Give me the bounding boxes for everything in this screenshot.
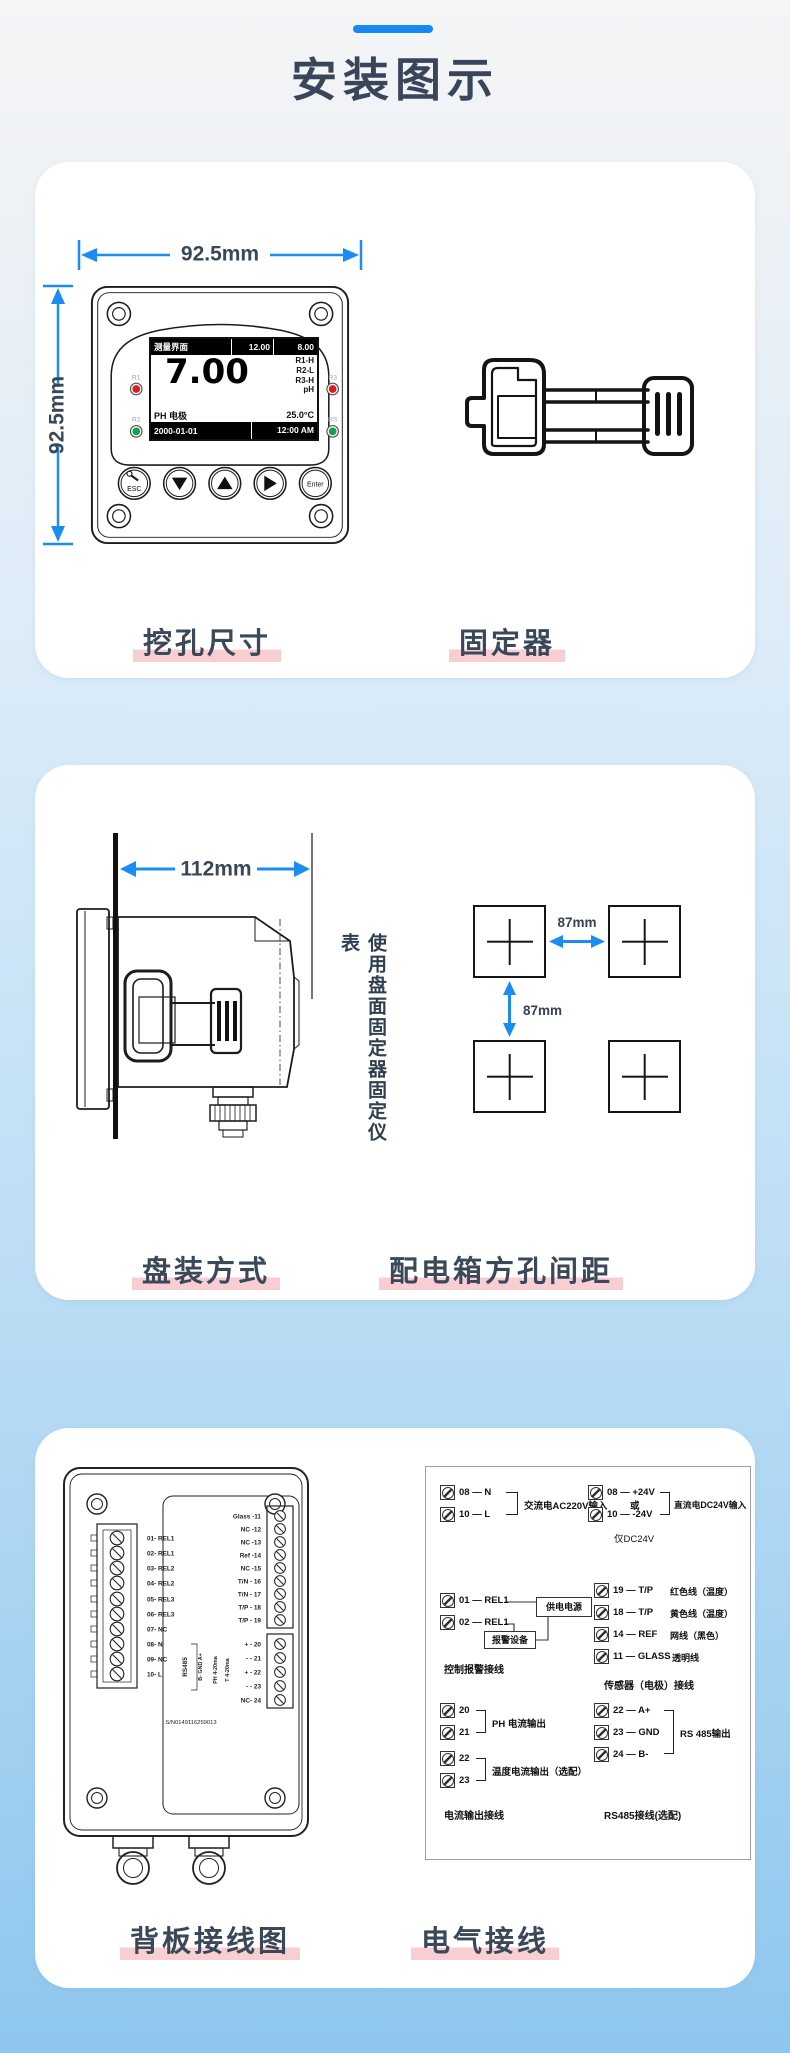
group-bracket xyxy=(660,1492,670,1515)
ph-main-value: 7.00 xyxy=(165,352,249,392)
terminal-screw xyxy=(440,1615,455,1630)
led-label-r2: R2 xyxy=(132,417,141,424)
pin-label: 01 — REL1 xyxy=(459,1595,509,1606)
pin-label: 20 xyxy=(459,1705,470,1716)
caption-cutout-size: 挖孔尺寸 xyxy=(133,620,281,662)
terminal-label: 08- N xyxy=(147,1642,163,1649)
probe-label: PH 电极 xyxy=(154,409,187,422)
dc-only-note: 仅DC24V xyxy=(614,1531,654,1545)
terminal-screw xyxy=(594,1627,609,1642)
wrench-icon xyxy=(127,471,138,480)
terminal-screw xyxy=(440,1485,455,1500)
terminal-label: 10- L xyxy=(147,1672,162,1679)
pin-label: 24 — B- xyxy=(613,1749,648,1760)
pin-label: 18 — T/P xyxy=(613,1607,653,1618)
led-r3 xyxy=(329,385,337,393)
group-bracket xyxy=(506,1492,518,1515)
pin-label: 11 — GLASS xyxy=(613,1651,671,1662)
terminal-screw xyxy=(588,1485,603,1500)
rs485-rotated-label: RS485 xyxy=(182,1657,189,1677)
pin-label: 02 — REL1 xyxy=(459,1617,509,1628)
relay-status-column: R1-H R2-L R3-H pH xyxy=(295,356,314,395)
terminal-label: 06- REL3 xyxy=(147,1612,175,1619)
terminal-label: 09- NC xyxy=(147,1657,168,1664)
terminal-label: Ref -14 xyxy=(240,1553,262,1560)
pin-label: 22 xyxy=(459,1753,470,1764)
terminal-label: 05- REL3 xyxy=(147,1597,175,1604)
up-arrow-icon xyxy=(217,477,232,490)
led-label-r1: R1 xyxy=(132,374,141,381)
hole-spacing-arrows: 87mm 87mm xyxy=(473,905,723,1115)
down-arrow-icon xyxy=(172,478,187,491)
screen-probe-row: PH 电极 25.0°C xyxy=(151,408,317,422)
terminal-label: 01- REL1 xyxy=(147,1536,175,1543)
pin-label: 22 — A+ xyxy=(613,1705,650,1716)
sensor-caption: 传感器（电极）接线 xyxy=(604,1677,694,1692)
dim-height-label: 92.5mm xyxy=(46,376,69,454)
device-lcd-screen: 测量界面 12.00 8.00 7.00 R1-H R2-L R3-H pH P… xyxy=(149,337,319,441)
ph-output-rotated-label: PH 4-20ma xyxy=(213,1655,219,1684)
terminal-screw xyxy=(440,1703,455,1718)
group-bracket xyxy=(476,1710,486,1733)
terminal-label: NC -13 xyxy=(241,1540,262,1547)
pin-label: 23 xyxy=(459,1775,470,1786)
caption-panel-mounting: 盘装方式 xyxy=(132,1248,280,1290)
terminal-screw xyxy=(440,1593,455,1608)
pin-label: 19 — T/P xyxy=(613,1585,653,1596)
terminal-label: T/P - 19 xyxy=(238,1618,261,1625)
screen-footer: 2000-01-01 12:00 AM xyxy=(151,422,317,439)
device-buttons: ESC Enter xyxy=(118,467,331,499)
square-holes-diagram: 87mm 87mm xyxy=(473,905,723,1115)
gap-vertical-label: 87mm xyxy=(523,1003,562,1018)
relay-3-status: R3-H xyxy=(295,376,314,386)
panel-side-view-drawing: 112mm xyxy=(63,831,343,1143)
enter-button-label: Enter xyxy=(307,481,324,488)
relay-caption: 控制报警接线 xyxy=(444,1661,504,1676)
cable-glands xyxy=(113,1836,229,1884)
temp-current-label: 温度电流输出（选配） xyxy=(492,1764,587,1778)
rs485-caption: RS485接线(选配) xyxy=(604,1807,681,1822)
terminal-label: T/N - 16 xyxy=(238,1579,262,1586)
terminal-label: NC -15 xyxy=(241,1566,262,1573)
temperature-value: 25.0°C xyxy=(286,410,314,420)
terminal-label: - - 21 xyxy=(246,1656,261,1663)
terminal-screw xyxy=(588,1507,603,1522)
pin-label: 08 — N xyxy=(459,1487,491,1498)
pin-label: 08 — +24V xyxy=(607,1487,655,1498)
terminal-label: NC- 24 xyxy=(241,1698,262,1705)
fixer-clamp-drawing xyxy=(450,350,700,460)
terminal-screw xyxy=(440,1507,455,1522)
dimension-height-arrow: 92.5mm xyxy=(41,282,75,548)
right-terminal-strips xyxy=(267,1506,293,1708)
terminal-screw xyxy=(594,1649,609,1664)
gap-horizontal-label: 87mm xyxy=(557,915,596,930)
terminal-screw xyxy=(440,1725,455,1740)
terminal-screw xyxy=(440,1773,455,1788)
led-label-rs: RS xyxy=(328,417,338,424)
terminal-label: + - 20 xyxy=(244,1642,261,1649)
pin-label: 10 — L xyxy=(459,1509,490,1520)
caption-electrical-wiring: 电气接线 xyxy=(411,1918,559,1960)
terminal-screw xyxy=(594,1725,609,1740)
device-front-view: R1 R2 R3 RS xyxy=(90,285,350,545)
caption-backpanel-wiring: 背板接线图 xyxy=(120,1918,300,1960)
terminal-screw xyxy=(440,1751,455,1766)
terminal-label: 02- REL1 xyxy=(147,1551,175,1558)
wire-desc: 黄色线（温度） xyxy=(670,1607,733,1620)
relay-2-status: R2-L xyxy=(295,366,314,376)
led-label-r3: R3 xyxy=(328,374,337,381)
pin-label: 10 — -24V xyxy=(607,1509,652,1520)
wire-desc: 红色线（温度） xyxy=(670,1585,733,1598)
title-accent-bar xyxy=(353,25,433,33)
terminal-screw xyxy=(594,1605,609,1620)
pin-label: 14 — REF xyxy=(613,1629,657,1640)
dim-width-label: 92.5mm xyxy=(181,243,259,266)
terminal-label: 04- REL2 xyxy=(147,1581,175,1588)
terminal-label: + - 22 xyxy=(244,1670,261,1677)
terminal-screw xyxy=(594,1703,609,1718)
led-r1 xyxy=(132,385,140,393)
ph-current-label: PH 电流输出 xyxy=(492,1716,546,1730)
terminal-label: NC -12 xyxy=(241,1527,262,1534)
group-bracket xyxy=(664,1710,674,1754)
backpanel-labels: 01- REL1 02- REL1 03- REL2 04- REL2 05- … xyxy=(147,1514,261,1727)
dimension-112mm: 112mm xyxy=(120,858,310,881)
card-wiring: 01- REL1 02- REL1 03- REL2 04- REL2 05- … xyxy=(35,1428,755,1988)
pin-label: 21 xyxy=(459,1727,470,1738)
dimension-width-arrow: 92.5mm xyxy=(75,238,365,272)
caption-hole-spacing: 配电箱方孔间距 xyxy=(379,1248,623,1290)
alarm-device-node: 报警设备 xyxy=(484,1631,536,1649)
date-value: 2000-01-01 xyxy=(151,426,251,436)
t-output-rotated-label: T 4-20ma xyxy=(225,1657,231,1681)
page-title: 安装图示 xyxy=(291,44,499,110)
terminal-label: - - 23 xyxy=(246,1684,261,1691)
caption-fixer: 固定器 xyxy=(449,620,565,662)
rs485-bracket xyxy=(191,1644,197,1690)
esc-button-label: ESC xyxy=(127,486,141,493)
serial-number: S/N0149116259013 xyxy=(165,1720,216,1726)
wire-desc: 透明线 xyxy=(672,1651,699,1664)
electrical-wiring-box: 08 — N 10 — L 交流电AC220V输入 或 08 — +24V 10… xyxy=(425,1466,751,1860)
cable-gland-side xyxy=(210,1087,256,1137)
left-terminal-strip xyxy=(91,1524,137,1688)
dc-input-label: 直流电DC24V输入 xyxy=(674,1498,746,1511)
right-arrow-icon xyxy=(264,476,277,491)
group-bracket xyxy=(476,1758,486,1781)
led-rs xyxy=(329,428,337,436)
current-caption: 电流输出接线 xyxy=(444,1807,504,1822)
relay-1-status: R1-H xyxy=(295,356,314,366)
dim-112-label: 112mm xyxy=(180,858,251,881)
mounting-note-vertical: 使用盘面固定器固定仪表 xyxy=(335,933,389,1153)
terminal-label: Glass -11 xyxy=(233,1514,262,1521)
unit-label: pH xyxy=(295,385,314,395)
rs485-pins-label: B- GND A+ xyxy=(198,1653,204,1681)
side-clamp-fixer xyxy=(125,971,241,1061)
backpanel-drawing: 01- REL1 02- REL1 03- REL2 04- REL2 05- … xyxy=(61,1462,311,1892)
terminal-label: T/N - 17 xyxy=(238,1592,262,1599)
terminal-label: 07- NC xyxy=(147,1627,168,1634)
terminal-label: 03- REL2 xyxy=(147,1566,175,1573)
wire-desc: 网线（黑色） xyxy=(670,1629,724,1642)
screen-setpoint-2: 8.00 xyxy=(273,339,317,355)
rs485-output-label: RS 485输出 xyxy=(680,1726,731,1740)
screen-main-area: 7.00 R1-H R2-L R3-H pH xyxy=(151,355,317,408)
led-r2 xyxy=(132,428,140,436)
terminal-screw xyxy=(594,1583,609,1598)
card-panel-mounting: 112mm 使用盘面固定器固定仪表 87mm 87mm 盘装方式 配电箱方孔间距 xyxy=(35,765,755,1300)
terminal-screw xyxy=(594,1747,609,1762)
time-value: 12:00 AM xyxy=(251,422,317,439)
pin-label: 23 — GND xyxy=(613,1727,659,1738)
card-cutout-size: 92.5mm 92.5mm R xyxy=(35,162,755,678)
terminal-label: T/P - 18 xyxy=(238,1605,261,1612)
power-supply-node: 供电电源 xyxy=(536,1597,592,1617)
